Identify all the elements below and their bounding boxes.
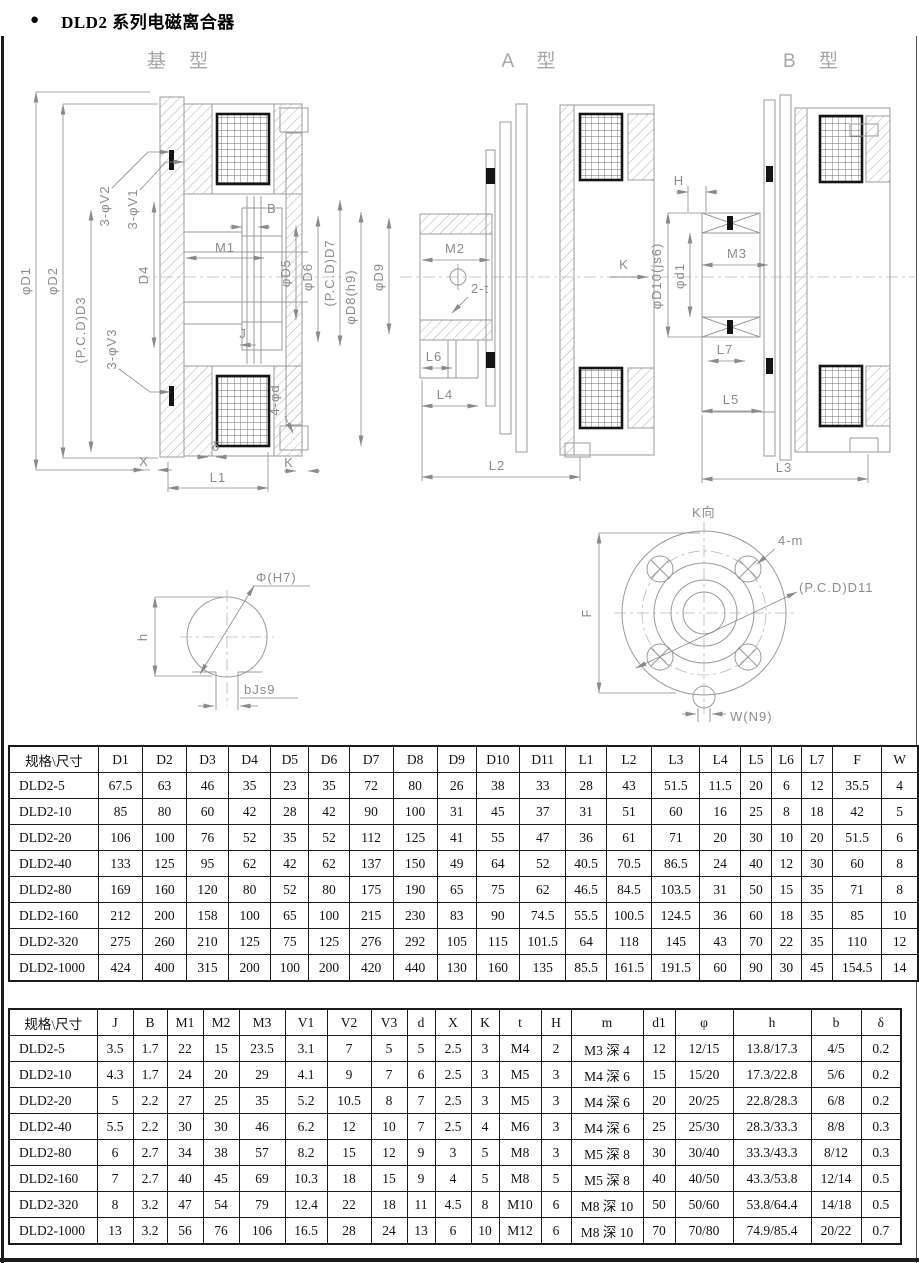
row-header: DLD2-5 (9, 1036, 97, 1062)
table-cell: 47 (167, 1192, 203, 1218)
view-label-K: K向 (692, 505, 716, 520)
column-header: D9 (437, 746, 476, 773)
table-row: DLD2-567.563463523357280263833284351.511… (9, 773, 918, 799)
table-cell: 8 (471, 1192, 499, 1218)
dim-label-J: J (239, 326, 247, 341)
table-cell: 124.5 (652, 903, 700, 929)
table-cell: 42 (271, 851, 309, 877)
row-header: DLD2-5 (9, 773, 98, 799)
table-cell: 36 (700, 903, 740, 929)
table-row: DLD2-1000133.2567610616.5282413610M126M8… (9, 1218, 901, 1245)
table-cell: 30/40 (675, 1140, 733, 1166)
table-cell: 160 (143, 877, 187, 903)
dim-label-PCD-D11: (P.C.D)D11 (799, 580, 874, 595)
column-header: L4 (700, 746, 740, 773)
table-cell: 70 (643, 1218, 675, 1245)
table-cell: 169 (98, 877, 142, 903)
table-cell: 200 (229, 955, 271, 982)
table-cell: 12 (801, 773, 832, 799)
table-cell: 80 (309, 877, 349, 903)
dim-label-L6: L6 (426, 349, 442, 364)
table-cell: 30 (740, 825, 771, 851)
table-cell: 0.5 (861, 1192, 901, 1218)
table-cell: M8 深 10 (571, 1192, 643, 1218)
table-row: DLD2-401331259562426213715049645240.570.… (9, 851, 918, 877)
table-cell: 4 (471, 1114, 499, 1140)
table-cell: 12 (772, 851, 801, 877)
dim-label-3phiV2: 3-φV2 (97, 186, 112, 227)
table-cell: 34 (167, 1140, 203, 1166)
column-header: d1 (643, 1009, 675, 1036)
row-header: DLD2-20 (9, 825, 98, 851)
table-cell: 0.2 (861, 1088, 901, 1114)
table-cell: 6 (882, 825, 918, 851)
table-cell: 3 (541, 1140, 571, 1166)
table-cell: 210 (187, 929, 229, 955)
table-cell: 215 (349, 903, 393, 929)
table-cell: 101.5 (520, 929, 566, 955)
table-cell: 103.5 (652, 877, 700, 903)
table-cell: 55 (476, 825, 519, 851)
basic-type-title: 基 型 (147, 50, 217, 72)
table-row: DLD2-2052.22725355.210.5872.53M53M4 深 62… (9, 1088, 901, 1114)
column-header: D4 (229, 746, 271, 773)
table-cell: 106 (239, 1218, 285, 1245)
table-cell: 76 (203, 1218, 239, 1245)
table-cell: 200 (309, 955, 349, 982)
table-cell: M3 深 4 (571, 1036, 643, 1062)
table-cell: 54 (203, 1192, 239, 1218)
table-cell: 72 (349, 773, 393, 799)
table-cell: 5 (882, 799, 918, 825)
header-row: 规格\尺寸D1D2D3D4D5D6D7D8D9D10D11L1L2L3L4L5L… (9, 746, 918, 773)
table-cell: 46 (187, 773, 229, 799)
table-cell: 50 (643, 1192, 675, 1218)
dim-label-phiD8h9: φD8(h9) (343, 269, 358, 324)
table-cell: 212 (98, 903, 142, 929)
column-header: V1 (285, 1009, 327, 1036)
table-cell: 0.2 (861, 1036, 901, 1062)
table-cell: 31 (437, 799, 476, 825)
row-header: DLD2-10 (9, 799, 98, 825)
table-cell: 80 (229, 877, 271, 903)
table-cell: 6 (772, 773, 801, 799)
table-cell: M4 (499, 1036, 541, 1062)
table-cell: 38 (476, 773, 519, 799)
table-cell: 17.3/22.8 (733, 1062, 811, 1088)
table-cell: 49 (437, 851, 476, 877)
table-cell: M12 (499, 1218, 541, 1245)
table-cell: 18 (772, 903, 801, 929)
table-cell: 125 (309, 929, 349, 955)
table-cell: 191.5 (652, 955, 700, 982)
table-cell: M6 (499, 1114, 541, 1140)
table-cell: 16 (700, 799, 740, 825)
table-cell: 100 (393, 799, 437, 825)
dim-label-L2: L2 (489, 458, 505, 473)
table-cell: 14 (882, 955, 918, 982)
dim-label-PCD-D3: (P.C.D)D3 (73, 296, 88, 363)
table-cell: 84.5 (606, 877, 651, 903)
column-header: M1 (167, 1009, 203, 1036)
column-header: M2 (203, 1009, 239, 1036)
table-cell: 12 (371, 1140, 407, 1166)
table-cell: 3.1 (285, 1036, 327, 1062)
column-header: B (133, 1009, 167, 1036)
dim-label-L3: L3 (776, 460, 792, 475)
table-cell: 16.5 (285, 1218, 327, 1245)
table-cell: 60 (700, 955, 740, 982)
datasheet-page: ● DLD2 系列电磁离合器 基 型 A 型 B 型 (0, 0, 919, 1263)
table-cell: 150 (393, 851, 437, 877)
column-header: L3 (652, 746, 700, 773)
table-cell: 3 (541, 1114, 571, 1140)
table-cell: 15 (371, 1166, 407, 1192)
table-cell: 11.5 (700, 773, 740, 799)
dim-label-X: X (139, 454, 149, 469)
table-cell: 5 (371, 1036, 407, 1062)
column-header: L1 (566, 746, 606, 773)
table-cell: 30 (772, 955, 801, 982)
table-cell: 64 (566, 929, 606, 955)
row-header: DLD2-80 (9, 1140, 97, 1166)
table-cell: 18 (327, 1166, 371, 1192)
column-header: V3 (371, 1009, 407, 1036)
table-cell: 125 (393, 825, 437, 851)
table-cell: 2.2 (133, 1088, 167, 1114)
table-cell: 24 (700, 851, 740, 877)
column-header: L6 (772, 746, 801, 773)
table-cell: 3.5 (97, 1036, 133, 1062)
table-cell: 86.5 (652, 851, 700, 877)
table-cell: M5 (499, 1062, 541, 1088)
table-cell: 52 (271, 877, 309, 903)
row-header: DLD2-320 (9, 1192, 97, 1218)
table-cell: 23 (271, 773, 309, 799)
table-cell: M4 深 6 (571, 1114, 643, 1140)
table-row: DLD2-20106100765235521121254155473661712… (9, 825, 918, 851)
table-cell: 175 (349, 877, 393, 903)
table-cell: 15 (327, 1140, 371, 1166)
table-cell: 60 (833, 851, 882, 877)
table-cell: 85 (833, 903, 882, 929)
table-cell: 2 (541, 1036, 571, 1062)
table-row: DLD2-8062.73438578.21512935M83M5 深 83030… (9, 1140, 901, 1166)
table-cell: 70/80 (675, 1218, 733, 1245)
table-cell: 28 (271, 799, 309, 825)
column-header: D8 (393, 746, 437, 773)
table-cell: 45 (801, 955, 832, 982)
dimension-table-2: 规格\尺寸JBM1M2M3V1V2V3dXKtHmd1φhbδDLD2-53.5… (8, 1008, 902, 1245)
table-cell: 5 (471, 1166, 499, 1192)
table-cell: 260 (143, 929, 187, 955)
table-cell: 30 (643, 1140, 675, 1166)
table-cell: 105 (437, 929, 476, 955)
table-cell: 100 (143, 825, 187, 851)
table-cell: 61 (606, 825, 651, 851)
table-cell: 5.5 (97, 1114, 133, 1140)
table-cell: 25 (740, 799, 771, 825)
table-cell: 7 (371, 1062, 407, 1088)
table-cell: 100 (229, 903, 271, 929)
table-cell: 79 (239, 1192, 285, 1218)
table-cell: 70 (740, 929, 771, 955)
table-cell: 23.5 (239, 1036, 285, 1062)
table-cell: 46.5 (566, 877, 606, 903)
column-header: δ (861, 1009, 901, 1036)
table-cell: 118 (606, 929, 651, 955)
row-header: DLD2-10 (9, 1062, 97, 1088)
column-header: L7 (801, 746, 832, 773)
table-cell: 10 (882, 903, 918, 929)
table-cell: 7 (407, 1088, 435, 1114)
column-header: L2 (606, 746, 651, 773)
table-cell: 74.5 (520, 903, 566, 929)
table-cell: 100 (271, 955, 309, 982)
table-row: DLD2-10858060422842901003145373151601625… (9, 799, 918, 825)
table-cell: 125 (143, 851, 187, 877)
table-cell: 6 (541, 1192, 571, 1218)
table-cell: 5/6 (811, 1062, 861, 1088)
table-cell: 30 (167, 1114, 203, 1140)
table-cell: 10 (471, 1218, 499, 1245)
table-cell: 31 (700, 877, 740, 903)
table-cell: 137 (349, 851, 393, 877)
table-cell: 12 (643, 1036, 675, 1062)
table-row: DLD2-16072.740456910.31815945M85M5 深 840… (9, 1166, 901, 1192)
table-cell: 2.5 (435, 1114, 471, 1140)
table-cell: 6 (407, 1062, 435, 1088)
table-cell: 2.7 (133, 1140, 167, 1166)
table-cell: 8 (772, 799, 801, 825)
table-cell: 15 (643, 1062, 675, 1088)
column-header: D5 (271, 746, 309, 773)
table-row: DLD2-104.31.72420294.19762.53M53M4 深 615… (9, 1062, 901, 1088)
table-cell: 158 (187, 903, 229, 929)
column-header: t (499, 1009, 541, 1036)
table-cell: 14/18 (811, 1192, 861, 1218)
table-cell: 0.3 (861, 1114, 901, 1140)
table-cell: 62 (520, 877, 566, 903)
dim-label-L4: L4 (437, 387, 453, 402)
column-header: D3 (187, 746, 229, 773)
table-cell: 3 (541, 1062, 571, 1088)
table-cell: 3.2 (133, 1218, 167, 1245)
table-cell: 15 (772, 877, 801, 903)
dim-label-phiD1: φD1 (18, 267, 33, 295)
column-header: K (471, 1009, 499, 1036)
table-cell: 3 (471, 1088, 499, 1114)
dim-label-L7: L7 (717, 342, 733, 357)
table-cell: 45 (476, 799, 519, 825)
table-cell: 63 (143, 773, 187, 799)
table-cell: M8 (499, 1140, 541, 1166)
table-cell: 69 (239, 1166, 285, 1192)
table-cell: 35 (309, 773, 349, 799)
table-cell: 7 (327, 1036, 371, 1062)
table-cell: 57 (239, 1140, 285, 1166)
row-header: DLD2-160 (9, 903, 98, 929)
table-cell: 35 (801, 877, 832, 903)
column-header: h (733, 1009, 811, 1036)
table-cell: 4 (435, 1166, 471, 1192)
table-cell: 90 (740, 955, 771, 982)
column-header: D10 (476, 746, 519, 773)
table-cell: 52 (309, 825, 349, 851)
dim-label-phiD6: φD6 (300, 263, 315, 291)
table-cell: 13 (407, 1218, 435, 1245)
table-cell: 65 (437, 877, 476, 903)
table-cell: 71 (652, 825, 700, 851)
table-cell: 70.5 (606, 851, 651, 877)
table-cell: 12.4 (285, 1192, 327, 1218)
table-cell: 424 (98, 955, 142, 982)
table-cell: 20/22 (811, 1218, 861, 1245)
table-cell: 22.8/28.3 (733, 1088, 811, 1114)
table-cell: 11 (407, 1192, 435, 1218)
table-cell: 18 (801, 799, 832, 825)
table-cell: 30 (801, 851, 832, 877)
page-title: DLD2 系列电磁离合器 (61, 8, 235, 33)
table-cell: 27 (167, 1088, 203, 1114)
table-cell: 80 (393, 773, 437, 799)
column-header: V2 (327, 1009, 371, 1036)
table-cell: 8 (371, 1088, 407, 1114)
table-cell: 10 (371, 1114, 407, 1140)
table-cell: 145 (652, 929, 700, 955)
dim-label-phid1: φd1 (672, 263, 687, 289)
table-cell: 10 (772, 825, 801, 851)
table-cell: 6 (435, 1218, 471, 1245)
drawing-keyway-detail: Φ(H7) h bJs9 (135, 570, 310, 710)
table-cell: 3.2 (133, 1192, 167, 1218)
table-cell: 51.5 (833, 825, 882, 851)
table-cell: 3 (541, 1088, 571, 1114)
row-header: DLD2-160 (9, 1166, 97, 1192)
table-cell: 20 (700, 825, 740, 851)
table-cell: 160 (476, 955, 519, 982)
table-cell: 115 (476, 929, 519, 955)
table-cell: 25 (643, 1114, 675, 1140)
table-cell: 51 (606, 799, 651, 825)
row-header: DLD2-40 (9, 851, 98, 877)
table-cell: 1.7 (133, 1036, 167, 1062)
dim-label-phiH7: Φ(H7) (256, 570, 297, 585)
table-cell: 60 (740, 903, 771, 929)
column-header: D6 (309, 746, 349, 773)
table-cell: 45 (203, 1166, 239, 1192)
table-cell: M10 (499, 1192, 541, 1218)
column-header: b (811, 1009, 861, 1036)
table-cell: 22 (167, 1036, 203, 1062)
table-cell: 100 (309, 903, 349, 929)
page-title-row: ● DLD2 系列电磁离合器 (30, 8, 235, 33)
table-cell: 20 (203, 1062, 239, 1088)
column-header: F (833, 746, 882, 773)
table-cell: 400 (143, 955, 187, 982)
table-cell: 50 (740, 877, 771, 903)
table-cell: 20 (801, 825, 832, 851)
table-cell: 200 (143, 903, 187, 929)
table-cell: 0.2 (861, 1062, 901, 1088)
table-cell: 2.2 (133, 1114, 167, 1140)
dim-label-2t: 2-t (471, 281, 489, 296)
table-cell: 65 (271, 903, 309, 929)
column-header: 规格\尺寸 (9, 746, 98, 773)
row-header: DLD2-40 (9, 1114, 97, 1140)
drawing-basic-type: φD1 φD2 (P.C.D)D3 D4 3-φV2 3-φV1 3-φV3 B… (18, 92, 361, 492)
table-cell: 420 (349, 955, 393, 982)
table-cell: 15/20 (675, 1062, 733, 1088)
header-row: 规格\尺寸JBM1M2M3V1V2V3dXKtHmd1φhbδ (9, 1009, 901, 1036)
drawing-flange-view: K向 4-m (P.C.D)D11 (579, 505, 874, 724)
table-cell: 76 (187, 825, 229, 851)
dim-label-phiD9: φD9 (371, 263, 386, 291)
dim-label-WN9: W(N9) (730, 709, 773, 724)
technical-drawings: 基 型 A 型 B 型 (0, 36, 919, 742)
table-cell: 52 (229, 825, 271, 851)
table-cell: 2.5 (435, 1088, 471, 1114)
table-cell: 106 (98, 825, 142, 851)
table-cell: 5 (471, 1140, 499, 1166)
table-cell: 55.5 (566, 903, 606, 929)
column-header: W (882, 746, 918, 773)
table-cell: 20 (643, 1088, 675, 1114)
table-cell: 440 (393, 955, 437, 982)
table-cell: 35 (271, 825, 309, 851)
table-cell: 8 (882, 851, 918, 877)
column-header: M3 (239, 1009, 285, 1036)
table-cell: 47 (520, 825, 566, 851)
table-cell: 20/25 (675, 1088, 733, 1114)
table-cell: 2.5 (435, 1036, 471, 1062)
table-cell: 90 (476, 903, 519, 929)
table-cell: 37 (520, 799, 566, 825)
table-cell: 60 (652, 799, 700, 825)
table-cell: 29 (239, 1062, 285, 1088)
drawing-b-type: H φD10(js6) φd1 M3 L7 L5 L3 (649, 95, 915, 483)
table-cell: 42 (309, 799, 349, 825)
table-cell: 85 (98, 799, 142, 825)
table-cell: 35 (229, 773, 271, 799)
table-cell: 135 (520, 955, 566, 982)
dim-label-4phid: 4-φd (267, 384, 282, 415)
dim-label-phiD2: φD2 (45, 267, 60, 295)
table-cell: 230 (393, 903, 437, 929)
table-cell: 74.9/85.4 (733, 1218, 811, 1245)
table-cell: 275 (98, 929, 142, 955)
table-cell: 133 (98, 851, 142, 877)
table-cell: 4.1 (285, 1062, 327, 1088)
table-cell: 43 (606, 773, 651, 799)
table-cell: 3 (471, 1062, 499, 1088)
table-cell: 31 (566, 799, 606, 825)
table-cell: 10.3 (285, 1166, 327, 1192)
row-header: DLD2-1000 (9, 955, 98, 982)
table-cell: 22 (327, 1192, 371, 1218)
table-cell: 62 (229, 851, 271, 877)
table-cell: 8 (882, 877, 918, 903)
column-header: J (97, 1009, 133, 1036)
table-cell: 2.7 (133, 1166, 167, 1192)
row-header: DLD2-320 (9, 929, 98, 955)
table-cell: 40 (740, 851, 771, 877)
table-row: DLD2-405.52.23030466.2121072.54M63M4 深 6… (9, 1114, 901, 1140)
drawing-a-type: φD9 M2 2-t L6 L4 L2 K (371, 104, 654, 481)
table-cell: 190 (393, 877, 437, 903)
table-row: DLD2-32083.247547912.42218114.58M106M8 深… (9, 1192, 901, 1218)
dim-label-B: B (267, 201, 277, 216)
